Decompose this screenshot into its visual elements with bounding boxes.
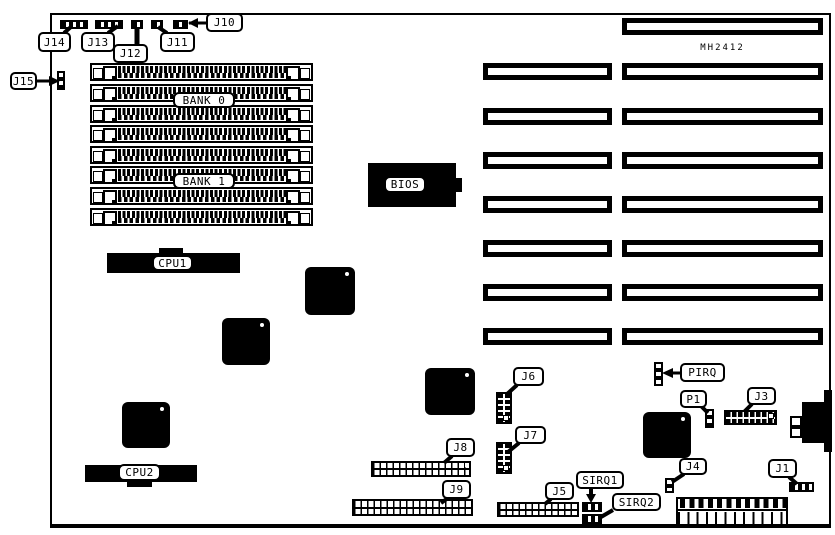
callout-j4: J4 (679, 458, 707, 475)
simm-contacts (118, 149, 296, 161)
simm-end (300, 110, 310, 121)
keyboard-connector-bracket (824, 390, 832, 452)
callout-j11: J11 (160, 32, 195, 52)
jumper-sirq1 (582, 502, 602, 512)
connector-j1 (789, 482, 814, 492)
power-connector-divider (678, 509, 786, 511)
keyboard-connector-notch (790, 416, 802, 427)
header-j6 (496, 392, 512, 424)
simm-latch (286, 211, 300, 226)
callout-sirq2: SIRQ2 (612, 493, 661, 511)
power-connector-pins (678, 499, 786, 508)
chip (222, 318, 270, 365)
simm-latch (103, 149, 117, 164)
simm-latch (286, 190, 300, 205)
simm-contacts (118, 211, 296, 223)
expansion-slot-long (622, 63, 823, 80)
header-j9 (352, 499, 473, 516)
simm-latch (286, 169, 300, 184)
simm-end (93, 151, 103, 162)
callout-j7: J7 (515, 426, 546, 444)
callout-j14: J14 (38, 32, 71, 52)
keyboard-connector-body (802, 402, 825, 443)
power-connector-sockets (678, 512, 786, 524)
expansion-slot-long (622, 328, 823, 345)
connector-p1 (705, 409, 714, 428)
simm-contacts (118, 66, 296, 78)
simm-latch (103, 128, 117, 143)
callout-pirq: PIRQ (680, 363, 725, 382)
chip (425, 368, 475, 415)
header-j7 (496, 442, 512, 474)
expansion-slot-long (622, 284, 823, 301)
cpu2-label: CPU2 (118, 464, 161, 481)
expansion-slot-short (483, 196, 612, 213)
expansion-slot-short (483, 63, 612, 80)
system-board-diagram: MH2412 (0, 0, 835, 535)
jumper-j13 (95, 20, 123, 29)
bank1-label: BANK 1 (173, 173, 235, 189)
callout-p1: P1 (680, 390, 707, 408)
bank0-label: BANK 0 (173, 92, 235, 108)
simm-end (93, 192, 103, 203)
board-model-text: MH2412 (660, 43, 785, 53)
expansion-slot-short (483, 284, 612, 301)
simm-contacts (118, 190, 296, 202)
simm-slot-8 (90, 208, 313, 226)
expansion-slot-long (622, 196, 823, 213)
simm-end (300, 213, 310, 224)
header-j8 (371, 461, 471, 477)
simm-latch (286, 149, 300, 164)
simm-contacts (118, 128, 296, 140)
simm-slot-4 (90, 125, 313, 143)
cpu1-tab (159, 248, 183, 254)
expansion-slot-long (622, 240, 823, 257)
callout-j8: J8 (446, 438, 475, 457)
simm-slot-7 (90, 187, 313, 205)
callout-j13: J13 (81, 32, 115, 52)
header-j5 (497, 502, 579, 517)
expansion-slot-long (622, 108, 823, 125)
cpu2-tab (127, 481, 152, 487)
simm-end (93, 171, 103, 182)
expansion-slot-short (483, 240, 612, 257)
simm-end (300, 192, 310, 203)
jumper-j15 (57, 71, 65, 90)
simm-end (93, 213, 103, 224)
expansion-slot-short (483, 108, 612, 125)
simm-latch (103, 108, 117, 123)
callout-j15: J15 (10, 72, 37, 90)
jumper-j14 (60, 20, 88, 29)
expansion-slot-short (483, 328, 612, 345)
simm-end (93, 89, 103, 100)
callout-sirq1: SIRQ1 (576, 471, 624, 489)
chip (643, 412, 691, 458)
simm-latch (103, 190, 117, 205)
simm-latch (103, 87, 117, 102)
callout-j10: J10 (206, 13, 243, 32)
simm-end (300, 89, 310, 100)
callout-j12: J12 (113, 44, 148, 63)
simm-latch (103, 169, 117, 184)
expansion-slot-short (483, 152, 612, 169)
bios-chip-notch (454, 178, 462, 192)
callout-j3: J3 (747, 387, 776, 405)
header-j3 (724, 410, 777, 425)
simm-latch (103, 211, 117, 226)
simm-end (300, 151, 310, 162)
simm-latch (286, 108, 300, 123)
simm-latch (286, 66, 300, 81)
keyboard-connector-notch (790, 427, 802, 438)
expansion-slot-long (622, 152, 823, 169)
callout-j5: J5 (545, 482, 574, 500)
simm-end (300, 130, 310, 141)
jumper-j12 (131, 20, 143, 29)
jumper-j4 (665, 478, 674, 493)
callout-j9: J9 (442, 480, 471, 499)
simm-end (93, 130, 103, 141)
expansion-slot-long (622, 18, 823, 35)
simm-end (300, 68, 310, 79)
simm-end (300, 171, 310, 182)
jumper-pirq (654, 362, 663, 386)
simm-end (93, 68, 103, 79)
simm-end (93, 110, 103, 121)
simm-latch (103, 66, 117, 81)
simm-contacts (118, 108, 296, 120)
simm-latch (286, 87, 300, 102)
simm-slot-5 (90, 146, 313, 164)
jumper-j10 (173, 20, 188, 29)
simm-latch (286, 128, 300, 143)
chip (305, 267, 355, 315)
cpu1-label: CPU1 (152, 255, 193, 271)
simm-slot-1 (90, 63, 313, 81)
jumper-sirq2 (582, 514, 602, 524)
callout-j1: J1 (768, 459, 797, 478)
bios-label: BIOS (384, 176, 426, 193)
power-connector (676, 497, 788, 526)
jumper-j11 (151, 20, 163, 29)
cpu2-chip (122, 402, 170, 448)
callout-j6: J6 (513, 367, 544, 386)
